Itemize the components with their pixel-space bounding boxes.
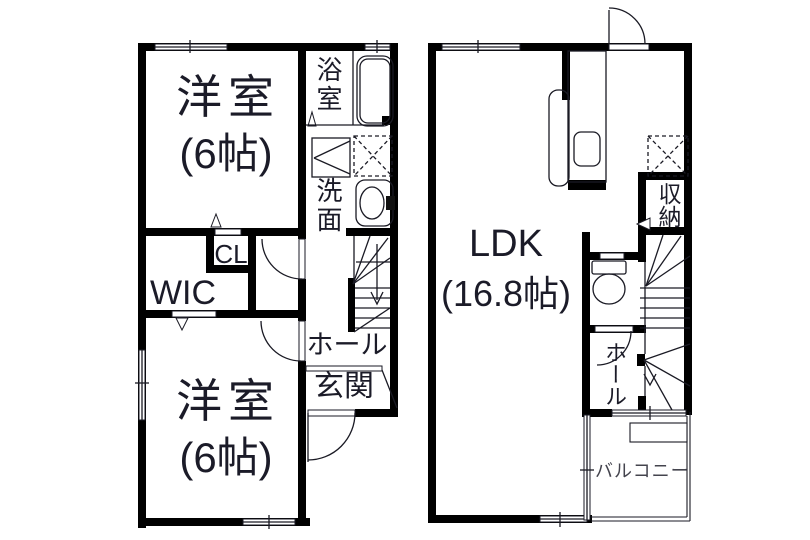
stair-down-arrow <box>371 244 383 304</box>
wic-door-mark <box>176 318 188 330</box>
label-storage: 収納 <box>656 182 679 228</box>
wall <box>638 172 646 262</box>
bathtub <box>357 56 393 126</box>
right-plan <box>428 8 692 527</box>
window <box>365 40 390 53</box>
washer-space-dashed <box>354 136 392 176</box>
label-ldk-size: (16.8帖) <box>423 276 589 312</box>
wall <box>298 361 306 521</box>
kitchen-sink <box>574 132 600 166</box>
floor-plan-drawing <box>0 0 810 540</box>
label-wic: WIC <box>146 276 220 310</box>
label-bedroom-bottom: 洋室 <box>168 378 288 424</box>
window <box>243 515 295 529</box>
label-washroom: 洗面 <box>315 177 341 235</box>
door-arc <box>262 239 305 279</box>
stair-newel-wall <box>637 354 645 366</box>
label-bedroom-top-size: (6帖) <box>156 133 296 175</box>
window <box>155 40 227 53</box>
label-entrance: 玄関 <box>308 372 380 402</box>
balcony-sliding-window <box>580 415 594 520</box>
door-arc <box>261 321 305 361</box>
label-hall-right: ホール <box>603 341 625 407</box>
wall <box>346 228 398 236</box>
closet-door-mark <box>211 214 221 227</box>
window <box>540 512 587 527</box>
left-plan-stairs <box>353 236 390 332</box>
toilet-opening <box>600 253 624 259</box>
washer-pan <box>312 138 350 177</box>
label-bedroom-bottom-size: (6帖) <box>156 437 296 479</box>
entrance-door-arc <box>308 410 355 462</box>
label-balcony: バルコニー <box>595 462 690 480</box>
window <box>442 40 520 53</box>
bath-door-mark <box>308 112 316 126</box>
window <box>612 406 686 420</box>
wall <box>355 409 398 417</box>
label-bedroom-top: 洋室 <box>168 74 288 120</box>
label-hall-left: ホール <box>306 332 388 359</box>
label-bathroom: 浴室 <box>315 56 341 114</box>
kitchen-counter <box>549 51 606 186</box>
wall <box>138 43 146 528</box>
refrigerator-space-dashed <box>648 136 688 176</box>
floor-plan-canvas: 洋室 (6帖) 浴室 洗面 CL WIC ホール 玄関 洋室 (6帖) LDK … <box>0 0 810 540</box>
stair-newel-wall <box>348 278 355 332</box>
right-plan-stairs <box>640 235 690 410</box>
label-closet: CL <box>212 241 250 267</box>
toilet <box>592 261 626 304</box>
washbasin <box>356 180 395 226</box>
balcony-equipment <box>630 423 687 442</box>
wall <box>298 51 306 239</box>
closet-opening <box>215 229 241 235</box>
label-ldk: LDK <box>450 225 562 263</box>
entry-door-arc <box>609 8 649 50</box>
window <box>135 350 149 420</box>
